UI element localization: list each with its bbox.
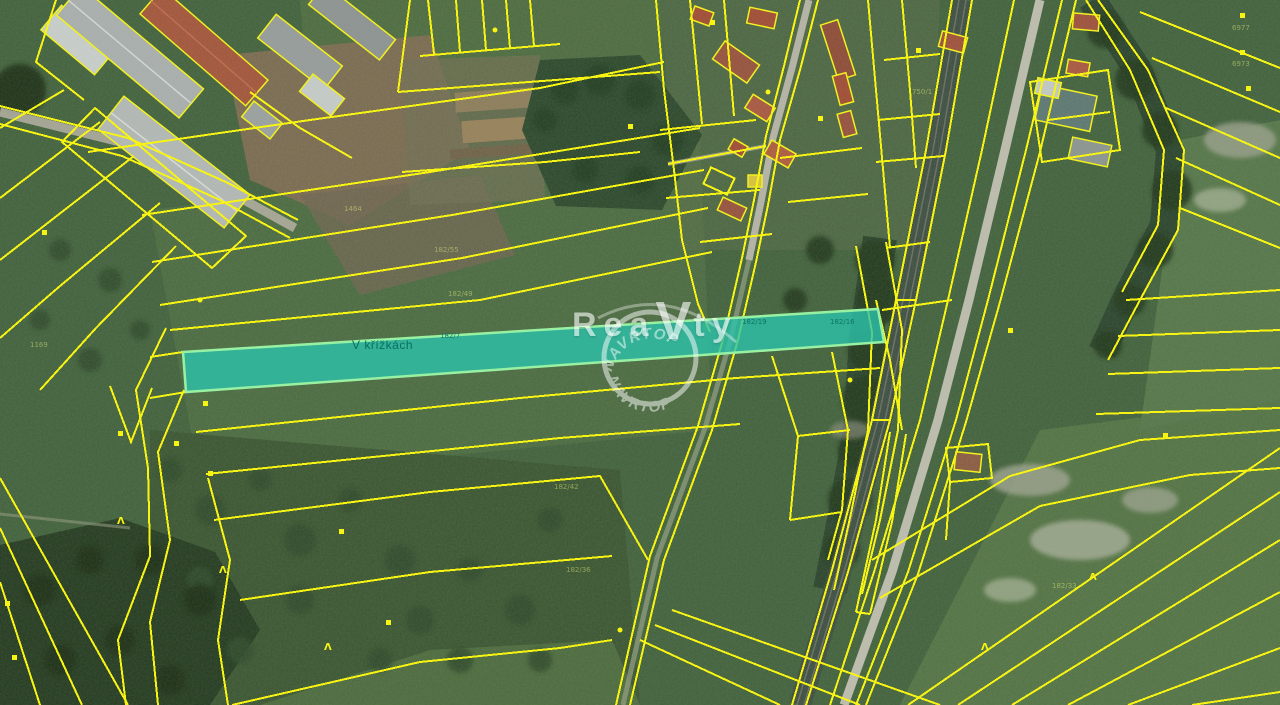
svg-text:Λ: Λ [117, 516, 125, 527]
svg-text:Λ: Λ [981, 642, 989, 653]
svg-text:Λ: Λ [219, 565, 227, 576]
svg-text:Λ: Λ [324, 642, 332, 653]
cadastral-map-svg: ΛΛ ΛΛ Λ NAVRTOP NAVRTOP [0, 0, 1280, 705]
svg-text:Λ: Λ [1089, 572, 1097, 583]
map-viewport: ΛΛ ΛΛ Λ NAVRTOP NAVRTOP V křížkách 1464 … [0, 0, 1280, 705]
